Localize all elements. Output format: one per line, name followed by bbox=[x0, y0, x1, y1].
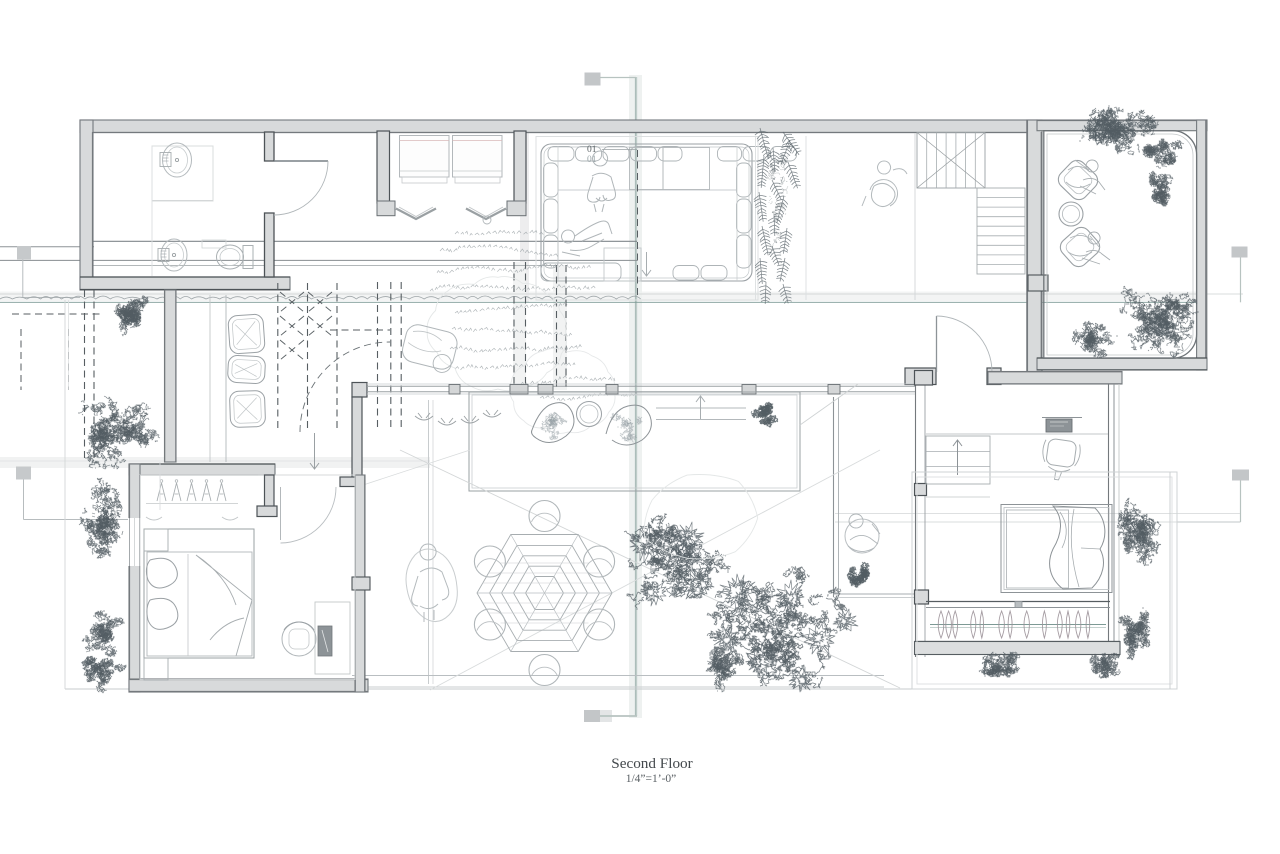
svg-text:Second Floor: Second Floor bbox=[611, 755, 692, 772]
svg-text:1/4”=1’-0”: 1/4”=1’-0” bbox=[626, 773, 677, 785]
svg-text:01: 01 bbox=[587, 145, 597, 155]
svg-text:01: 01 bbox=[587, 155, 597, 165]
